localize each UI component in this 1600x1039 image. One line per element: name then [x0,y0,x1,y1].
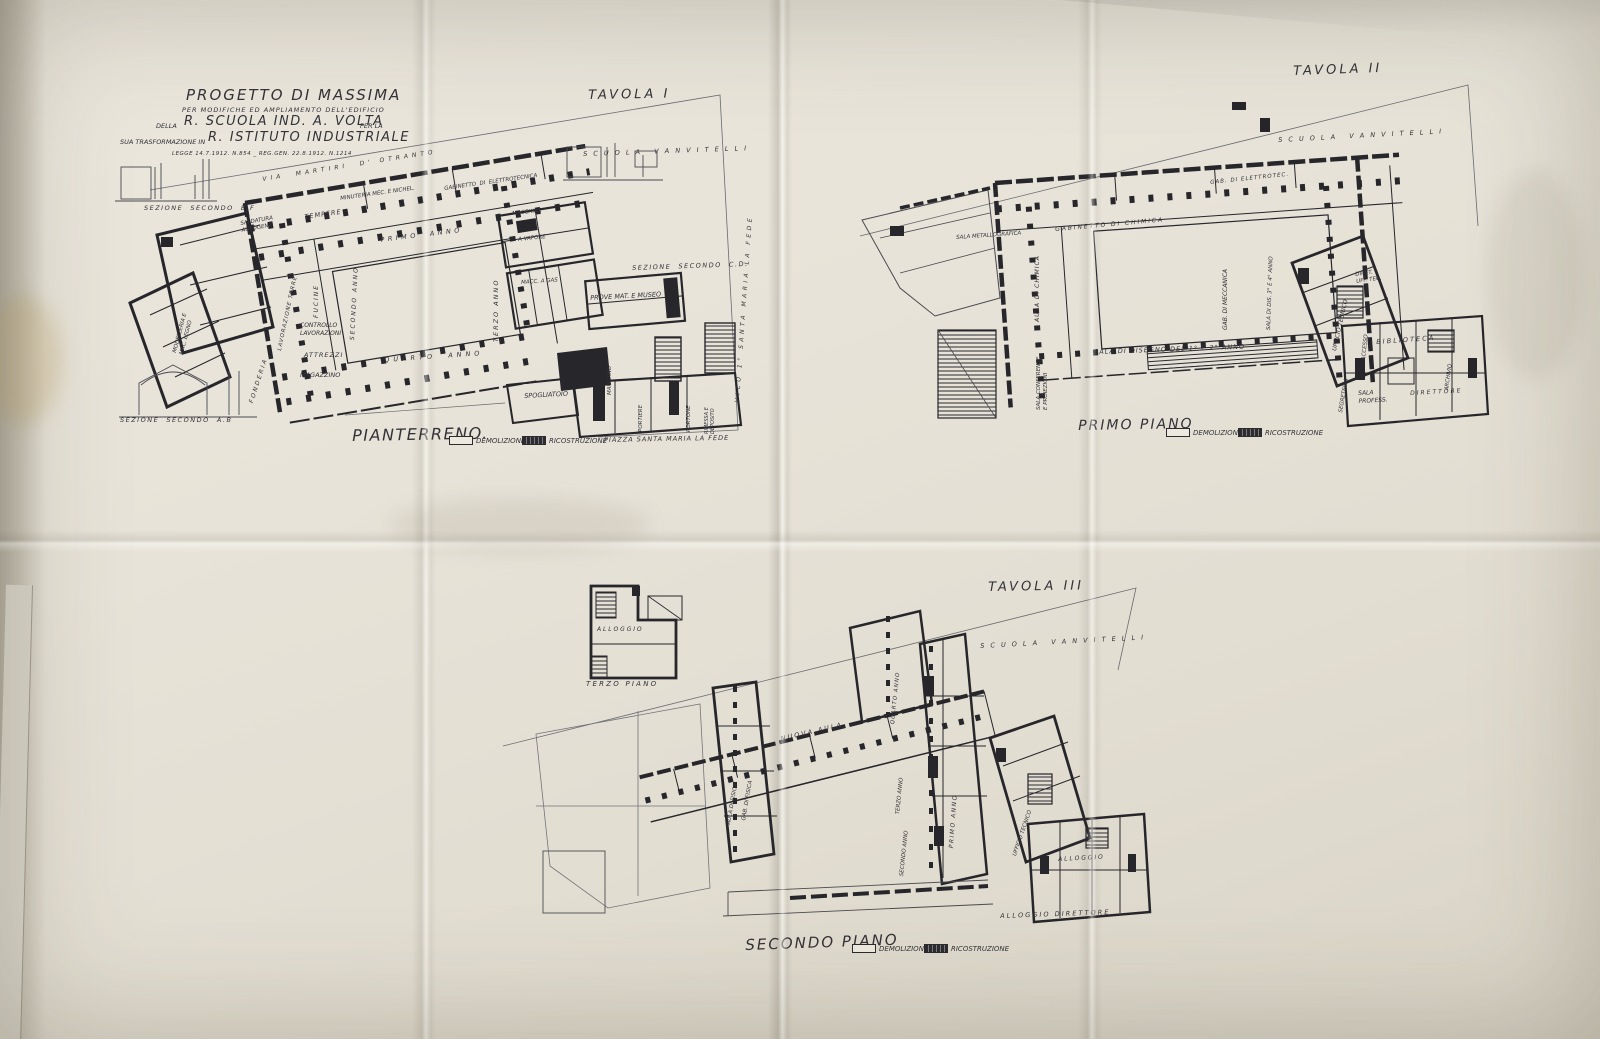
demolizione-label-1: DEMOLIZIONE [476,437,525,445]
pianterreno-plan-drawing [95,85,785,460]
ricostruzione-label-3: RICOSTRUZIONE [951,945,1009,953]
scanned-drawing-photo: PROGETTO DI MASSIMA PER MODIFICHE ED AMP… [0,0,1600,1039]
label-gab-meccanica: GAB. DI MECCANICA [1222,269,1230,330]
terzo-piano-caption: T E R Z O P I A N O [586,680,656,689]
label-mangano: MANGANO [607,366,614,395]
label-alloggio-small: A L L O G G I O [597,626,642,634]
ricostruzione-swatch-3 [924,944,948,953]
demolizione-swatch-3 [852,944,876,953]
demolizione-label-2: DEMOLIZIONE [1193,429,1242,437]
label-terzo-anno-1: TERZO ANNO [492,278,500,342]
label-sezione-ef: SEZIONE SECONDO E.F [144,204,255,212]
secondo-piano-legend-ricostruzione: RICOSTRUZIONE [924,944,1009,953]
label-rimessa-deposito: RIMESSA E DEPOSITO [704,407,717,434]
label-portone: PORTONE [686,405,693,432]
ricostruzione-label-1: RICOSTRUZIONE [549,437,607,445]
pianterreno-legend-demolizione: DEMOLIZIONE [449,436,525,445]
label-portiere: PORTIERE [638,405,645,432]
primo-piano-legend-demolizione: DEMOLIZIONE [1166,428,1242,437]
primo-piano-plan-drawing [840,58,1485,453]
label-magazzino: MAGAZZINO [300,371,340,379]
demolizione-swatch-1 [449,436,473,445]
label-conferenze: SALA CONFERENZE E PROIEZIONI [1036,357,1050,410]
label-fucine: FUCINE [313,284,321,318]
label-aula-chimica: AULA DI CHIMICA [1034,255,1042,322]
label-attrezzi: ATTREZZI [304,351,343,359]
tavola1-title: TAVOLA I [588,87,671,105]
ricostruzione-label-2: RICOSTRUZIONE [1265,429,1323,437]
primo-piano-legend-ricostruzione: RICOSTRUZIONE [1238,428,1323,437]
label-sezione-ab: SEZIONE SECONDO A.B [120,416,232,424]
label-sala-profess: SALA PROFESS. [1358,388,1388,405]
tavola2-title: TAVOLA II [1293,61,1383,80]
tavola3-title: TAVOLA III [988,578,1084,596]
demolizione-swatch-2 [1166,428,1190,437]
ricostruzione-swatch-2 [1238,428,1262,437]
ricostruzione-swatch-1 [522,436,546,445]
pianterreno-legend-ricostruzione: RICOSTRUZIONE [522,436,607,445]
demolizione-label-3: DEMOLIZIONE [879,945,928,953]
label-controllo-lavorazioni: CONTROLLO LAVORAZIONI [300,322,341,337]
secondo-piano-legend-demolizione: DEMOLIZIONE [852,944,928,953]
